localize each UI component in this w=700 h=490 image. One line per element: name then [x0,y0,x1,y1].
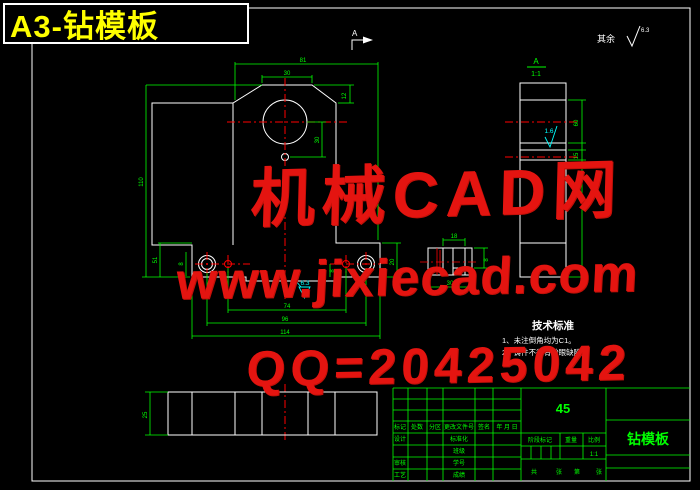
tb-stage-mark: 阶段标记 [528,436,552,444]
section-arrow-label: A [352,29,358,38]
view-scale: 1:1 [531,71,541,78]
tb-header-biaoji: 标记 [394,423,406,431]
title-block-text: 标记 处数 分区 更改文件号 签名 年 月 日 设计 审核 工艺 标准化 班级 … [394,401,670,479]
corner-roughness-note: 其余 6.3 [597,26,650,46]
dim-110: 110 [139,177,145,187]
tb-header-chushu: 处数 [411,423,423,431]
dim-30-top: 30 [284,71,291,77]
corner-note-value: 6.3 [641,28,650,34]
tb-header-date: 年 月 日 [496,423,517,431]
tb-header-change-file: 更改文件号 [444,423,474,431]
tb-shenhe: 审核 [394,459,406,467]
tb-header-qianming: 签名 [478,423,490,431]
sheet-label-text: A3-钻模板 [5,1,159,46]
tb-part-name: 钻模板 [627,431,670,447]
tech-notes-title: 技术标准 [532,319,574,332]
dim-30-center: 30 [315,136,321,143]
tb-di: 第 [574,468,580,476]
dim-12: 12 [342,92,348,99]
section-arrow: A [352,29,373,50]
tb-material: 45 [556,401,570,416]
watermark-line2: www.jixiecad.com [175,244,640,312]
view-letter: A [533,57,539,66]
side-dim-a: 60 [574,119,580,126]
watermark-line1: 机械CAD网 [250,138,625,240]
dim-81: 81 [300,58,307,64]
dim-96: 96 [282,317,289,323]
side-view-label: A 1:1 [527,57,546,78]
tb-sheji: 设计 [394,435,406,443]
bottom-view-dim: 25 [143,411,149,418]
tb-gongyi: 工艺 [394,471,406,479]
side-roughness-value: 1.6 [544,128,553,135]
tb-zhang1: 张 [556,468,562,476]
tb-header-fenqu: 分区 [429,423,441,431]
dim-114: 114 [280,330,290,336]
roughness-check-icon [627,26,640,46]
bottom-view [168,392,377,435]
tb-gong: 共 [531,468,537,476]
dim-51: 51 [153,256,159,263]
tb-scale-value: 1:1 [590,452,599,458]
watermark-line3: QQ=20425042 [245,333,632,398]
tb-scale-label: 比例 [588,436,600,444]
cad-screenshot: { "sheet": { "label": "A3-钻模板" }, "corne… [0,0,700,490]
detail-dim-top: 18 [451,234,458,240]
tb-weight: 重量 [565,436,577,444]
corner-note-prefix: 其余 [597,33,615,44]
tb-biaozhunhua: 标准化 [450,435,468,443]
tb-zhang2: 张 [596,468,602,476]
sheet-label-box: A3-钻模板 [3,3,249,44]
tb-xuehao: 学号 [453,459,465,467]
tb-banji: 班级 [453,447,465,455]
tb-chengji: 成绩 [453,471,465,479]
